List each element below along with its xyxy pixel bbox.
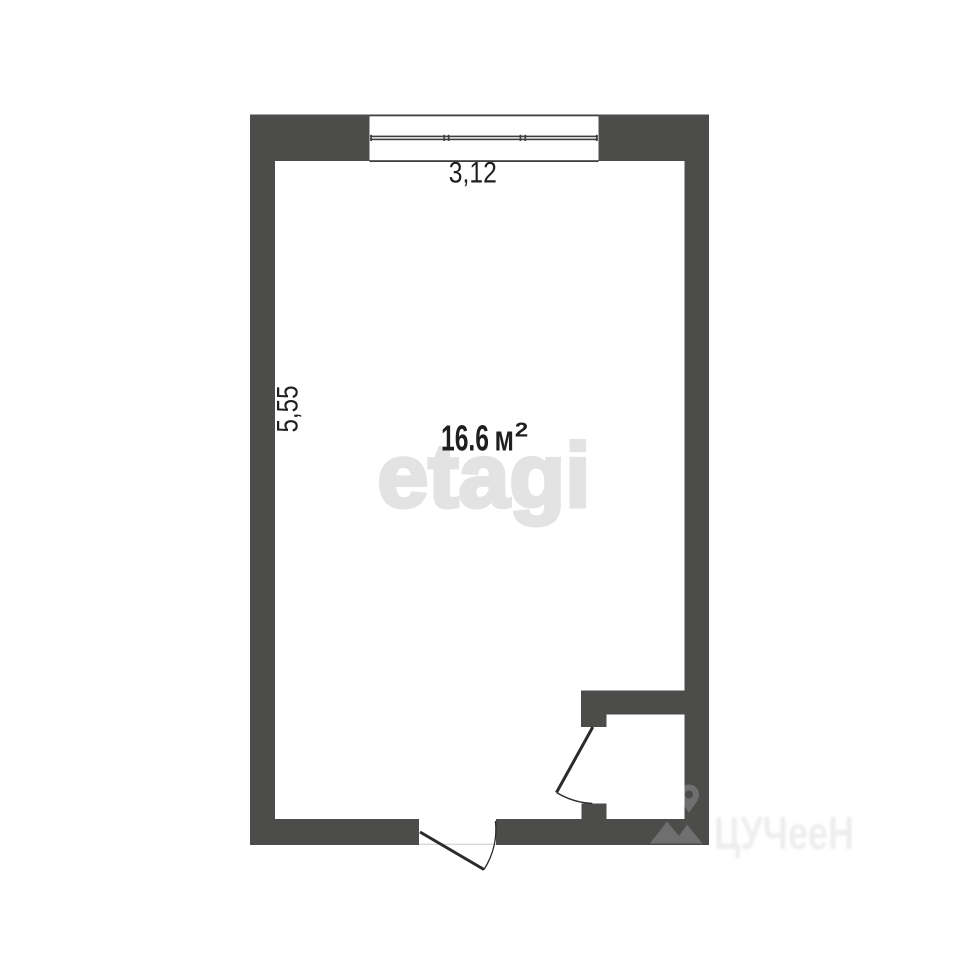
svg-text:16.6: 16.6 <box>441 418 489 459</box>
svg-text:3,12: 3,12 <box>449 157 497 190</box>
svg-text:м: м <box>495 418 515 459</box>
svg-text:2: 2 <box>515 420 529 442</box>
svg-text:ЦУЧееН: ЦУЧееН <box>714 807 854 859</box>
svg-text:5,55: 5,55 <box>272 386 305 433</box>
